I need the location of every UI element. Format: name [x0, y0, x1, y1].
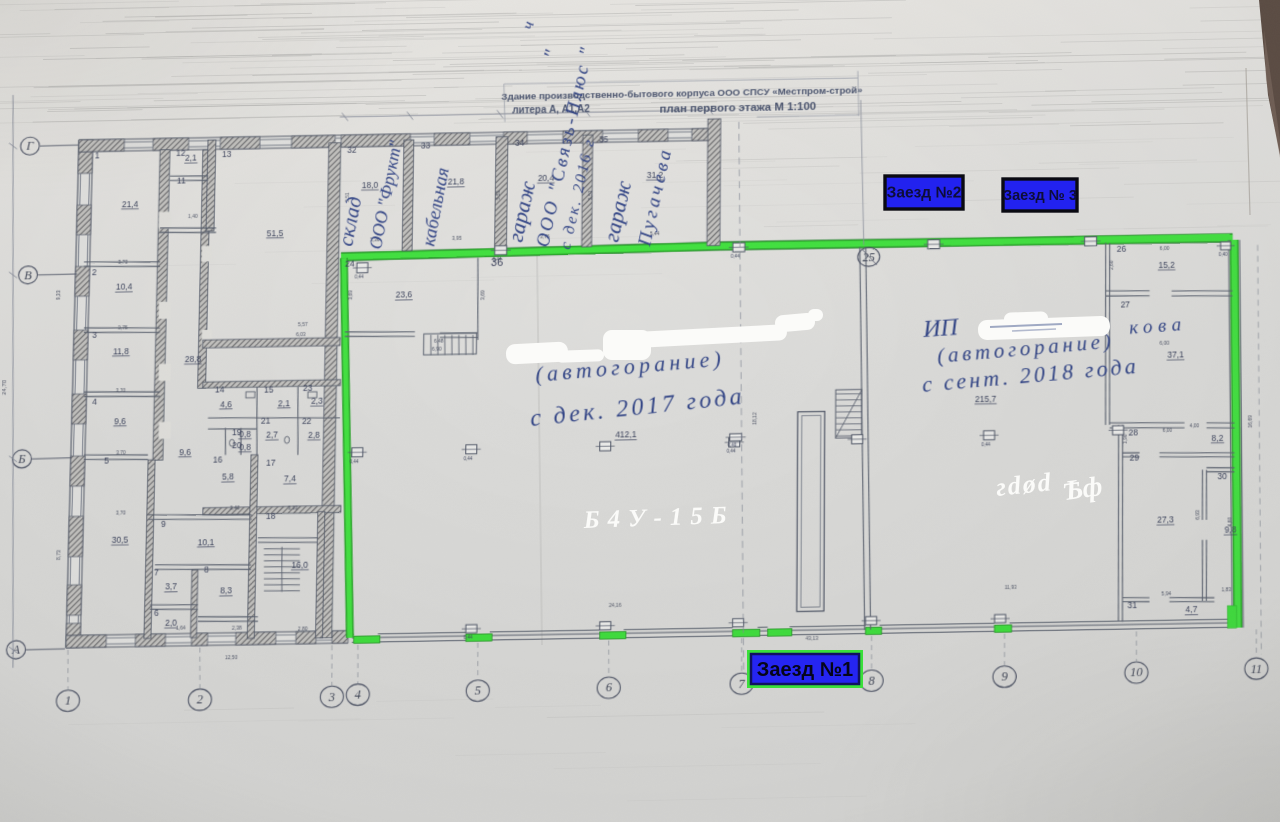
- svg-text:Заезд №2: Заезд №2: [887, 185, 962, 202]
- svg-text:Заезд № 3: Заезд № 3: [1003, 188, 1077, 204]
- svg-text:Ѣф: Ѣф: [1062, 471, 1105, 507]
- svg-text:гdød: гdød: [995, 467, 1054, 502]
- svg-text:Заезд №1: Заезд №1: [757, 659, 853, 681]
